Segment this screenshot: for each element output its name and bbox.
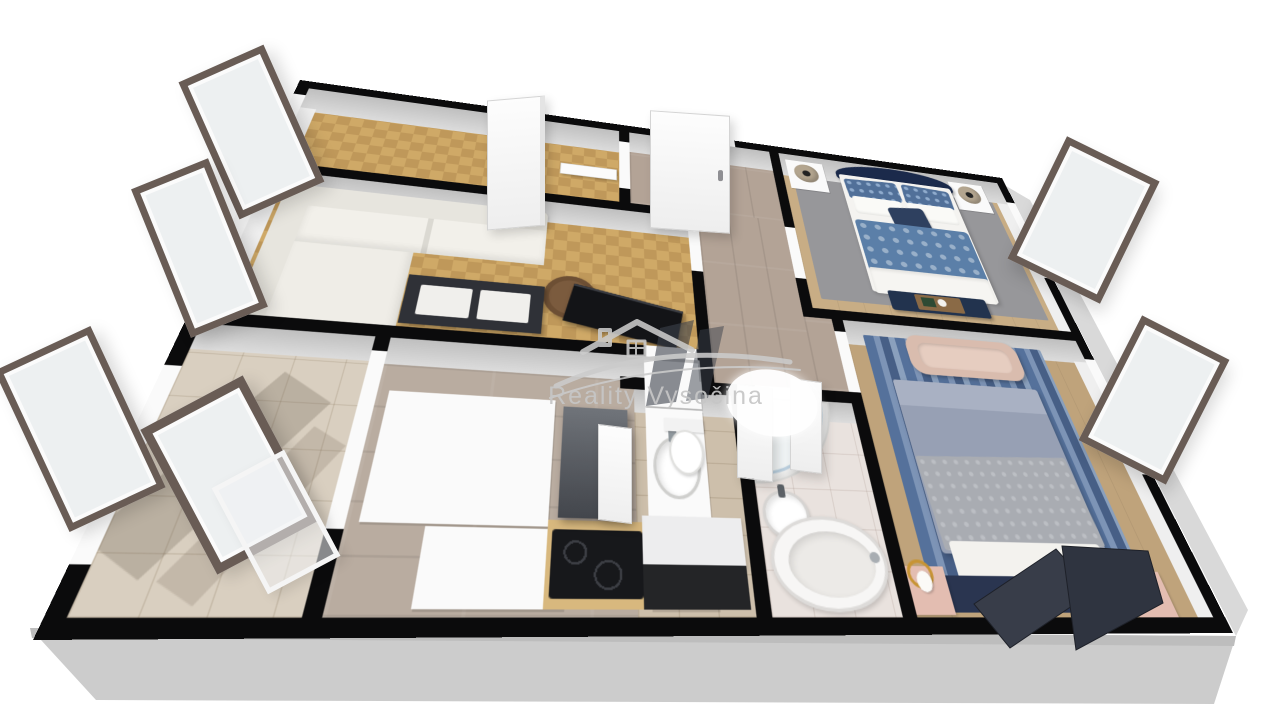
wc-door (598, 424, 632, 524)
bed-gray-headboard (941, 575, 1140, 612)
entry-door (650, 110, 730, 234)
door-handle (718, 170, 723, 181)
kitchen-island-cabinet (359, 390, 556, 526)
tv-lowboard-drawer (476, 290, 531, 323)
wc-cabinet-front (643, 564, 751, 610)
open-door-upper-left-room (487, 95, 545, 230)
wc-cabinet-top (642, 515, 747, 568)
plinth-front-face (30, 628, 1236, 704)
induction-cooktop (548, 529, 643, 599)
floorplan-render: Reality Vysočina (0, 0, 1280, 720)
tv-lowboard-drawer (415, 285, 473, 319)
wall-exterior-south (33, 617, 1233, 640)
door-opening (619, 141, 630, 189)
